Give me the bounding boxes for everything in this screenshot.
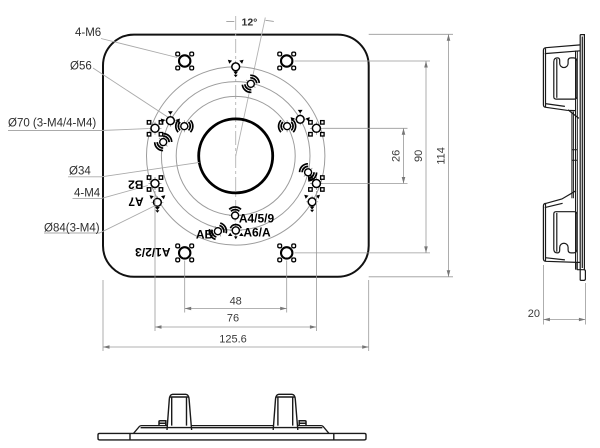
svg-text:A1/2/3: A1/2/3: [135, 245, 171, 259]
svg-text:Ø84(3-M4): Ø84(3-M4): [44, 223, 100, 235]
svg-text:Ø70 (3-M4/4-M4): Ø70 (3-M4/4-M4): [8, 118, 96, 130]
svg-text:20: 20: [528, 308, 540, 320]
svg-text:125.6: 125.6: [219, 334, 247, 346]
svg-text:26: 26: [391, 150, 403, 162]
svg-text:Ø56: Ø56: [70, 61, 92, 73]
svg-text:90: 90: [413, 150, 425, 162]
svg-text:114: 114: [436, 147, 448, 165]
svg-text:4-M4: 4-M4: [74, 188, 101, 200]
svg-text:Ø34: Ø34: [69, 166, 91, 178]
svg-text:76: 76: [227, 313, 239, 325]
svg-text:4-M6: 4-M6: [75, 27, 101, 39]
svg-text:A7: A7: [128, 195, 144, 209]
svg-text:48: 48: [230, 296, 242, 308]
svg-text:B2: B2: [128, 178, 144, 192]
svg-text:A4/5/9: A4/5/9: [239, 212, 275, 226]
svg-text:12°: 12°: [242, 17, 258, 29]
svg-text:A6/A: A6/A: [243, 226, 271, 240]
